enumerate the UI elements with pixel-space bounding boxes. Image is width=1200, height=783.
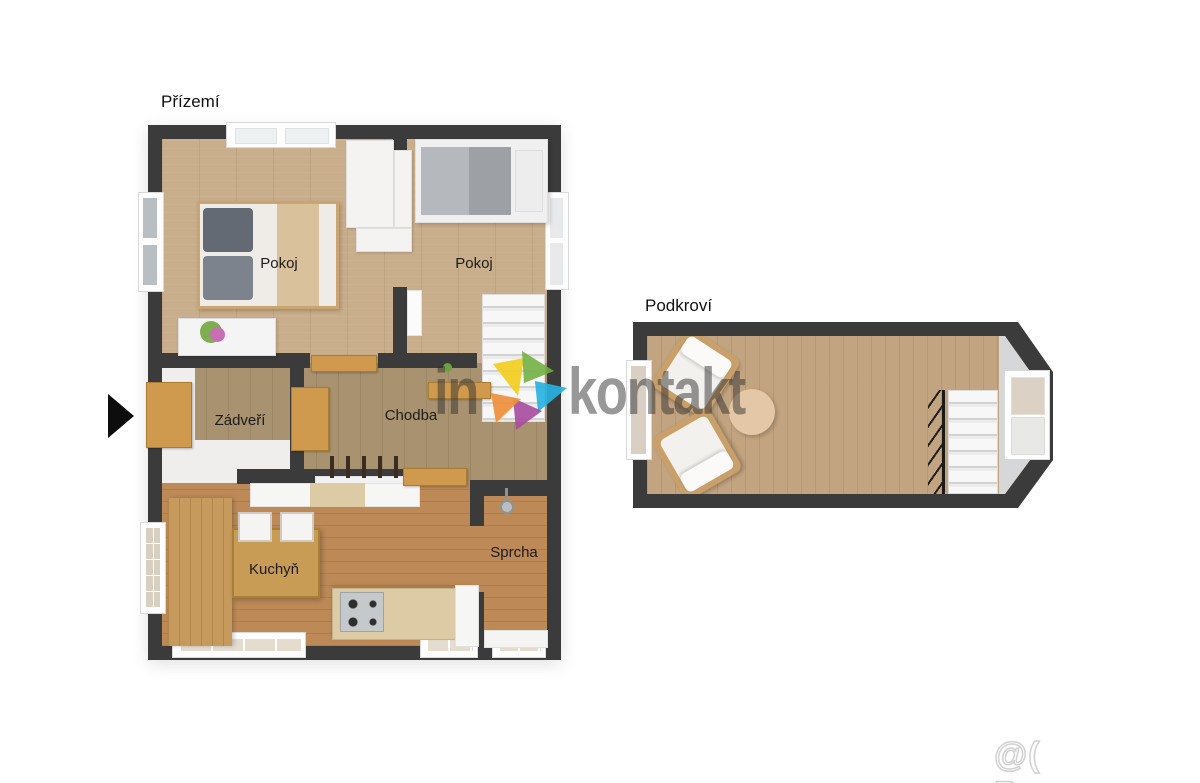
single-bed — [415, 139, 548, 223]
attic-plan — [633, 322, 1053, 508]
kitchen-door — [403, 468, 467, 486]
floorplan-image: Přízemí — [0, 0, 1200, 783]
wardrobe-lower — [356, 228, 412, 252]
inkontakt-logo-icon — [488, 350, 580, 436]
single-bed-blanket — [421, 147, 469, 215]
counter-end-panel — [455, 585, 479, 647]
room-label-sprcha: Sprcha — [474, 544, 554, 561]
armchair-2 — [650, 406, 743, 501]
shower-tray — [484, 630, 548, 648]
room-door-leaf-white — [407, 290, 422, 336]
stove — [340, 592, 384, 632]
wall-mid-right — [378, 353, 477, 368]
bar-stool-1 — [238, 512, 272, 542]
window-right-bedroom — [545, 192, 569, 290]
room-label-chodba: Chodba — [371, 407, 451, 424]
room-label-kuchyn: Kuchyň — [234, 561, 314, 578]
shower-head — [500, 500, 514, 514]
ground-floor-title: Přízemí — [161, 92, 220, 112]
wardrobe-side — [394, 150, 412, 228]
wall-top — [148, 125, 561, 139]
attic-railing-balusters — [928, 390, 944, 494]
zadveri-door — [291, 387, 329, 451]
single-bed-pillow — [515, 150, 543, 212]
attic-window-left — [626, 360, 652, 460]
coat-hook-4 — [378, 456, 382, 478]
bed-pillow-1 — [203, 208, 253, 252]
entry-door — [146, 382, 192, 448]
attic-floor — [647, 336, 1039, 494]
coat-hook-1 — [330, 456, 334, 478]
chodba-top-door — [311, 355, 377, 372]
attic-window-right — [1004, 370, 1050, 460]
coffee-table — [729, 389, 775, 435]
kitchen-counter-top-wood — [310, 483, 365, 507]
entrance-arrow-icon — [108, 394, 134, 438]
coat-hook-2 — [346, 456, 350, 478]
bar-stool-2 — [280, 512, 314, 542]
room-label-zadveri: Zádveří — [200, 412, 280, 429]
watermark-green-dot — [443, 363, 452, 372]
coat-hook-5 — [394, 456, 398, 478]
kitchen-bench — [168, 498, 232, 646]
plant-flower-pink — [210, 327, 225, 342]
wardrobe — [346, 140, 394, 228]
wall-between-rooms-lower — [393, 287, 407, 355]
attic-title: Podkroví — [645, 296, 712, 316]
window-top — [226, 122, 336, 148]
wall-sprcha-side-upper — [470, 480, 484, 526]
coat-hook-3 — [362, 456, 366, 478]
window-left-kitchen — [140, 522, 166, 614]
room-label-pokoj-right: Pokoj — [439, 255, 509, 272]
room-label-pokoj-left: Pokoj — [244, 255, 314, 272]
armchair-1 — [650, 326, 742, 420]
bazos-watermark: @( Bazos.cz — [994, 736, 1200, 783]
attic-stairs — [948, 390, 998, 494]
desk — [178, 318, 276, 356]
stairs-door — [428, 382, 491, 399]
window-left-bedroom — [138, 192, 164, 292]
